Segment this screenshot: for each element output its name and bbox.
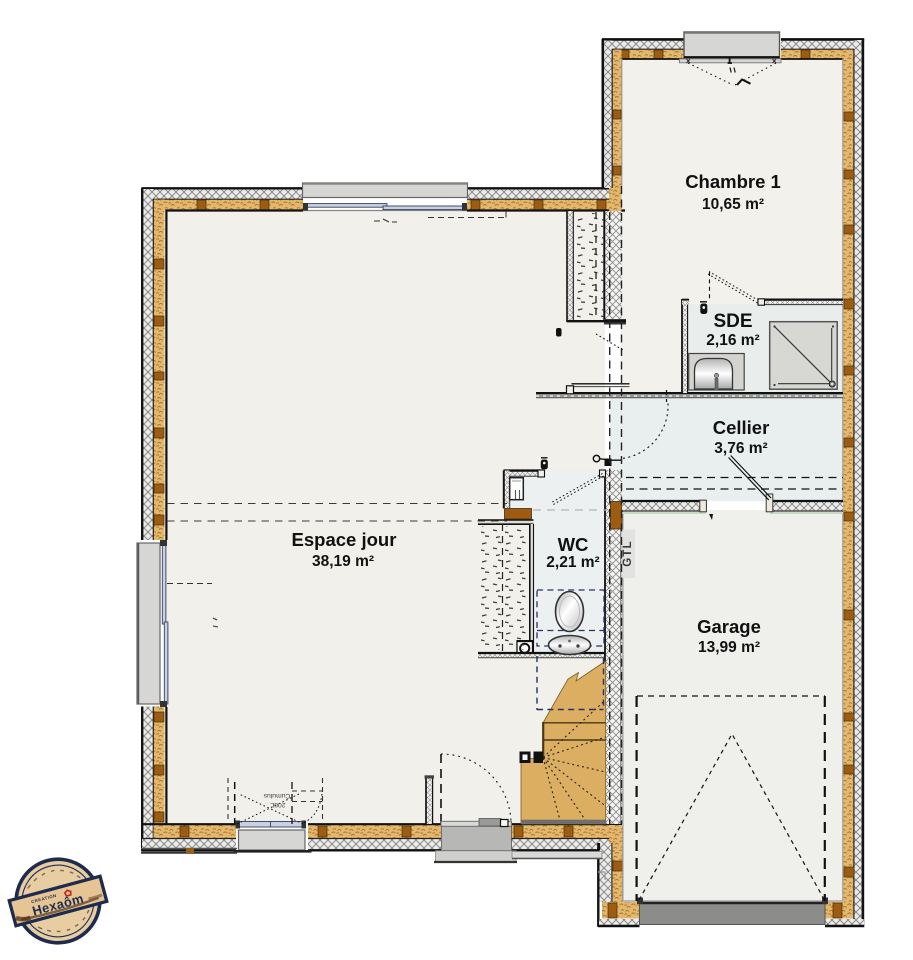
svg-text:WC: WC — [558, 534, 589, 555]
svg-text:Garage: Garage — [697, 616, 761, 637]
svg-text:38,19 m²: 38,19 m² — [312, 553, 374, 570]
svg-text:GTL: GTL — [622, 540, 634, 567]
svg-text:Espace jour: Espace jour — [292, 529, 397, 550]
svg-text:Cellier: Cellier — [713, 417, 770, 438]
svg-text:3,76 m²: 3,76 m² — [714, 440, 767, 457]
svg-text:2,21 m²: 2,21 m² — [546, 554, 599, 571]
svg-text:2,16 m²: 2,16 m² — [706, 332, 759, 349]
svg-text:13,99 m²: 13,99 m² — [698, 639, 760, 656]
svg-text:SDE: SDE — [713, 311, 752, 332]
svg-text:Chambre 1: Chambre 1 — [685, 171, 781, 192]
svg-text:Cumulus: Cumulus — [263, 792, 290, 799]
svg-text:200L: 200L — [270, 801, 285, 808]
svg-text:10,65 m²: 10,65 m² — [702, 196, 764, 213]
